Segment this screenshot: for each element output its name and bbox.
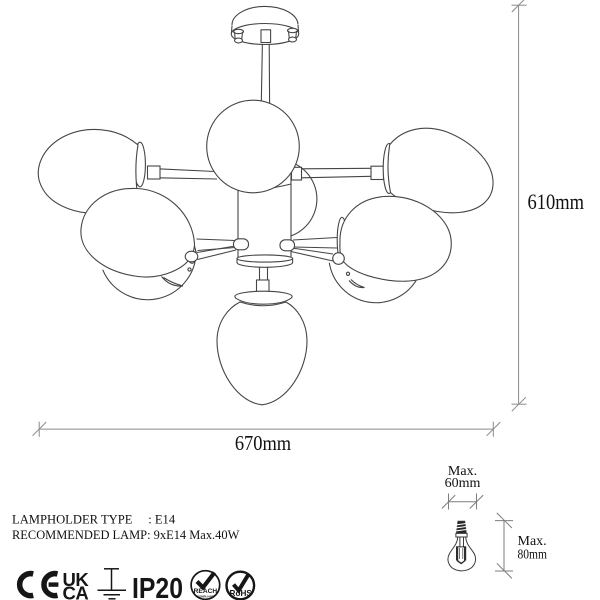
- svg-text:80mm: 80mm: [518, 547, 548, 562]
- svg-text:60mm: 60mm: [445, 476, 481, 491]
- svg-text:CA: CA: [63, 583, 89, 600]
- svg-text:IP20: IP20: [132, 573, 183, 600]
- svg-text:670mm: 670mm: [235, 431, 292, 455]
- svg-text:LAMPHOLDER TYPE : E14: LAMPHOLDER TYPE : E14: [12, 513, 176, 527]
- svg-text:RECOMMENDED LAMP: 9xE14 Max.40: RECOMMENDED LAMP: 9xE14 Max.40W: [12, 528, 240, 542]
- svg-text:610mm: 610mm: [528, 190, 585, 214]
- svg-text:COMPLIANT: COMPLIANT: [197, 594, 214, 598]
- svg-text:RoHS: RoHS: [230, 589, 253, 598]
